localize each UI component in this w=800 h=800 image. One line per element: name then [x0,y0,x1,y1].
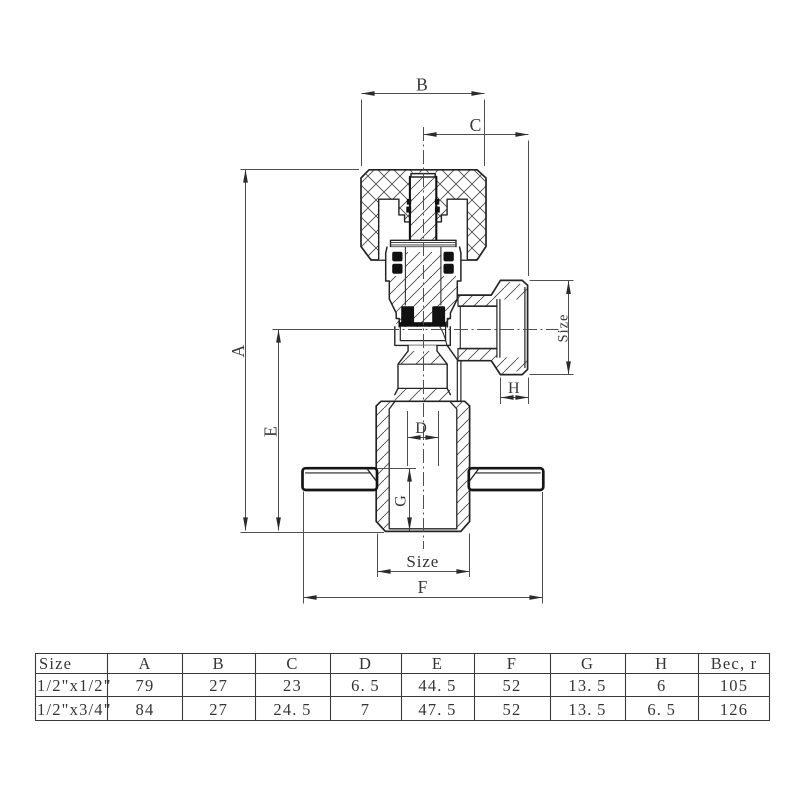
svg-text:44. 5: 44. 5 [418,676,456,695]
svg-text:23: 23 [283,676,302,695]
svg-text:126: 126 [720,700,748,719]
svg-text:G: G [392,494,409,507]
svg-text:Bec, r: Bec, r [711,654,758,673]
svg-text:E: E [432,654,443,673]
svg-text:C: C [470,115,483,135]
svg-text:B: B [213,654,225,673]
svg-text:G: G [581,654,594,673]
svg-text:A: A [138,654,151,673]
svg-text:52: 52 [503,676,522,695]
svg-text:D: D [415,420,428,437]
svg-text:B: B [416,75,429,95]
svg-text:105: 105 [720,676,748,695]
svg-text:52: 52 [503,700,522,719]
svg-text:13. 5: 13. 5 [568,700,606,719]
svg-text:47. 5: 47. 5 [418,700,456,719]
svg-text:F: F [418,577,429,597]
svg-text:A: A [228,344,248,358]
svg-text:1/2"x1/2": 1/2"x1/2" [37,676,112,695]
svg-text:1/2"x3/4": 1/2"x3/4" [37,700,112,719]
svg-text:27: 27 [209,676,228,695]
svg-text:F: F [507,654,517,673]
svg-text:D: D [359,654,372,673]
svg-text:27: 27 [209,700,228,719]
svg-text:79: 79 [136,676,155,695]
svg-text:Size: Size [39,654,72,673]
svg-text:6: 6 [657,676,666,695]
svg-text:Size: Size [555,314,571,343]
svg-text:13. 5: 13. 5 [568,676,606,695]
svg-text:84: 84 [136,700,155,719]
svg-text:E: E [260,425,280,437]
svg-text:6. 5: 6. 5 [647,700,676,719]
svg-text:C: C [286,654,298,673]
svg-text:6. 5: 6. 5 [351,676,380,695]
svg-text:24. 5: 24. 5 [273,700,311,719]
svg-text:H: H [655,654,668,673]
svg-text:Size: Size [406,552,439,571]
svg-text:H: H [508,380,521,397]
svg-text:7: 7 [361,700,370,719]
